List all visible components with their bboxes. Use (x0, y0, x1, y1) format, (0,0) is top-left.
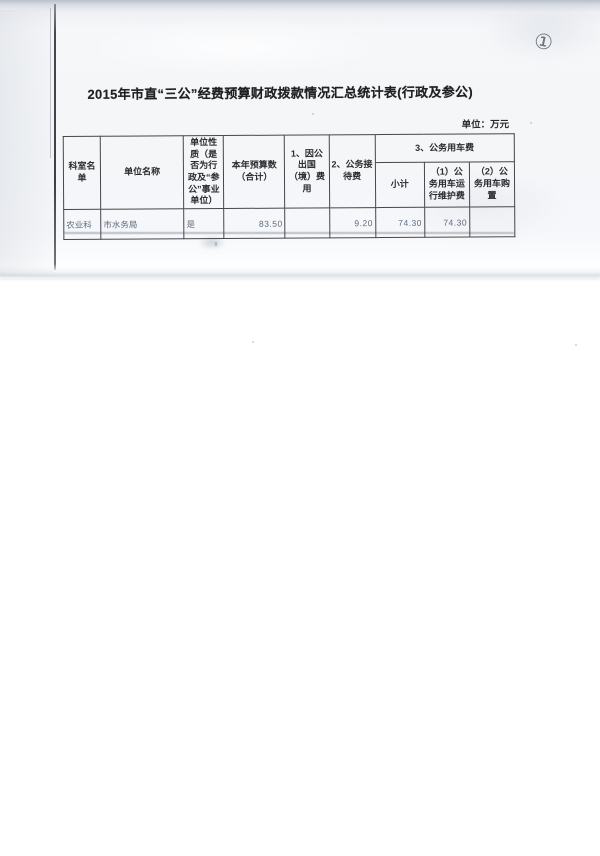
header-unit-name: 单位名称 (100, 136, 184, 210)
header-annual-budget-total: 本年预算数（合计） (224, 135, 286, 208)
cell-unit-name: 市水务局 (101, 209, 184, 240)
cell-unit-nature: 是 (184, 209, 224, 239)
cell-overseas-expense (285, 208, 329, 238)
document-content: 2015年市直“三公”经费预算财政拨款情况汇总统计表(行政及参公) 单位：万元 … (0, 0, 600, 400)
header-reception-expense: 2、公务接待费 (329, 135, 376, 208)
header-unit-nature: 单位性质（是否为行政及“参公”事业单位） (183, 136, 224, 209)
cell-reception-expense: 9.20 (329, 208, 375, 238)
cell-annual-budget-total: 83.50 (224, 208, 285, 238)
scanned-page: ① 2015年市直“三公”经费预算财政拨款情况汇总统计表(行政及参公) 单位：万… (0, 0, 600, 856)
cell-vehicle-maintenance: 74.30 (424, 207, 469, 237)
header-vehicle-group: 3、公务用车费 (375, 134, 515, 163)
unit-note: 单位：万元 (462, 116, 510, 130)
table-row: 农业科 市水务局 是 83.50 9.20 74.30 74.30 (64, 207, 515, 240)
header-vehicle-maintenance: （1）公务用车运行维护费 (424, 162, 469, 208)
header-dept-list: 科室名单 (63, 136, 101, 209)
three-public-expense-table: 科室名单 单位名称 单位性质（是否为行政及“参公”事业单位） 本年预算数（合计）… (63, 133, 516, 240)
cell-vehicle-purchase (470, 207, 515, 237)
cell-vehicle-subtotal: 74.30 (375, 207, 424, 237)
header-vehicle-subtotal: 小计 (375, 162, 424, 208)
header-vehicle-purchase: （2）公务用车购置 (469, 161, 514, 207)
document-title: 2015年市直“三公”经费预算财政拨款情况汇总统计表(行政及参公) (87, 81, 507, 103)
header-overseas-expense: 1、因公出国（境）费用 (285, 135, 330, 208)
cell-dept: 农业科 (64, 209, 101, 239)
